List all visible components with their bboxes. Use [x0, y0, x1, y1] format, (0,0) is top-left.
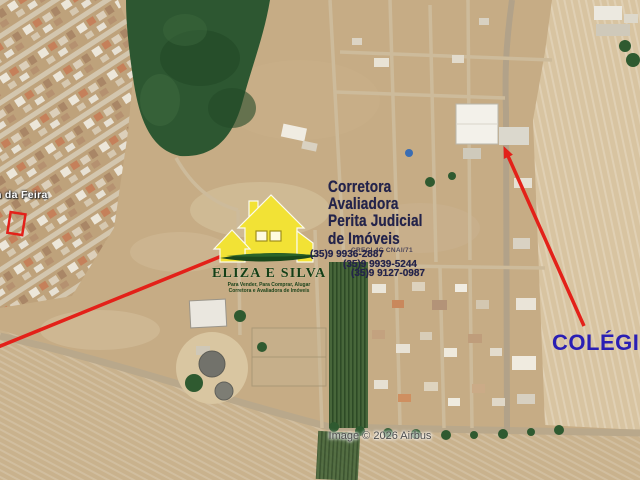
advert-title: Corretora Avaliadora Perita Judicial de …	[328, 178, 423, 247]
red-line	[0, 254, 228, 348]
imagery-attribution: Image © 2026 Airbus	[300, 430, 460, 442]
advert-title-line: Avaliadora	[328, 195, 423, 212]
red-arrow	[508, 156, 584, 326]
red-lot-marker	[7, 212, 25, 235]
place-label: n da Feira	[0, 189, 48, 201]
colegio-label: COLÉGIO	[552, 330, 640, 356]
advert-title-line: de Imóveis	[328, 230, 423, 247]
advert-title-line: Corretora	[328, 178, 423, 195]
logo-tagline-2: Corretora e Avaliadora de Imóveis	[212, 288, 326, 294]
phone-number-3: (35)9 9127-0987	[351, 269, 425, 279]
map-screenshot: ELIZA E SILVA Para Vender, Para Comprar,…	[0, 0, 640, 480]
advert-title-line: Perita Judicial	[328, 212, 423, 229]
logo-name: ELIZA E SILVA	[212, 266, 326, 282]
eliza-silva-logo: ELIZA E SILVA Para Vender, Para Comprar,…	[212, 192, 326, 296]
logo-house-icon	[212, 192, 326, 268]
